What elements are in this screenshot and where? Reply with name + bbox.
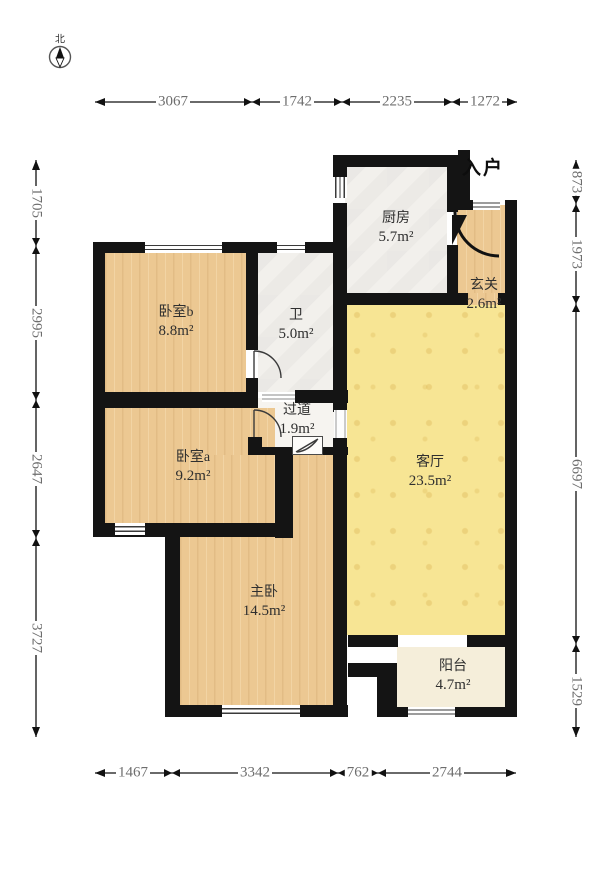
floor-plan: 厨房5.7m² 玄关2.6m² 卧室b8.8m² 卫5.0m² 过道1.9m² … [0,0,615,880]
room-label-hallway: 玄关2.6m² [467,277,502,313]
wall [93,242,105,537]
window [222,705,300,717]
wall [447,167,458,212]
room-label-bedroom-a: 卧室a9.2m² [176,449,211,485]
wall [467,635,507,647]
wall [333,155,470,167]
compass-north-label: 北 [55,31,65,46]
room-label-living-room: 客厅23.5m² [409,454,451,490]
dimension-value: 3342 [238,766,272,781]
wall [333,203,347,412]
wall [248,437,262,455]
dimension-value: 1973 [569,237,584,271]
room-label-balcony: 阳台4.7m² [436,658,471,694]
window [115,523,145,535]
entry-label: 入户 [462,153,504,180]
dimension-value: 762 [345,766,372,781]
room-floor-master-bedroom [180,455,333,705]
room-label-bedroom-b: 卧室b8.8m² [159,304,194,340]
wall [165,523,180,717]
wall [275,447,293,538]
window [473,200,500,210]
dimension-value: 6697 [569,457,584,491]
wall [377,663,397,717]
dimension-value: 1529 [569,674,584,708]
dimension-value: 1272 [468,95,502,110]
dimension-value: 1705 [29,186,44,220]
wall [246,253,258,350]
room-label-corridor: 过道1.9m² [280,402,315,438]
wall [222,242,277,253]
dimension-value: 873 [569,169,584,196]
wall [93,392,258,408]
dimension-value: 1467 [116,766,150,781]
window [408,707,455,717]
wall [348,663,378,677]
wall [455,707,507,717]
window [333,177,347,198]
wall [246,378,258,392]
dimension-value: 1742 [280,95,314,110]
wall [348,635,398,647]
wall [447,245,458,305]
dimension-value: 3067 [156,95,190,110]
wall [505,200,517,717]
wall [305,242,335,253]
dimension-value: 3727 [29,621,44,655]
wall [333,438,347,710]
dimension-value: 2235 [380,95,414,110]
room-label-bathroom: 卫5.0m² [279,307,314,343]
room-label-master-bedroom: 主卧14.5m² [243,584,285,620]
dimension-value: 2995 [29,306,44,340]
window [277,242,305,253]
compass-icon [50,47,71,68]
dimension-value: 2744 [430,766,464,781]
window [145,242,222,253]
dimension-value: 2647 [29,452,44,486]
bathroom-door-threshold [262,392,295,402]
master-bedroom-door-frame [292,436,323,455]
room-label-kitchen: 厨房5.7m² [379,210,414,246]
corridor-living-opening [334,410,347,438]
